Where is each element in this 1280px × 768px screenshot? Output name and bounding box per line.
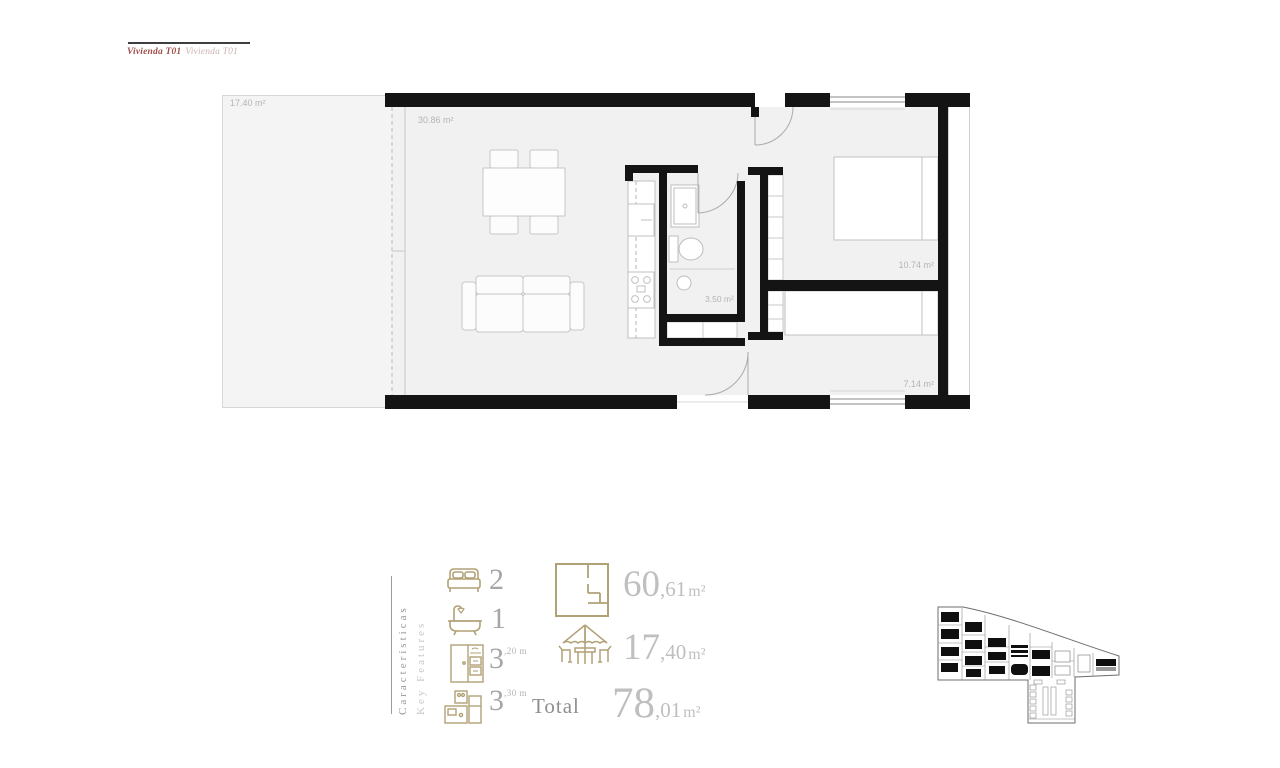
bedroom1-area-label: 10.74 m² <box>898 260 934 270</box>
bathroom-sink <box>677 276 691 290</box>
built-area-main: 60 <box>623 564 660 605</box>
kitchen <box>628 181 655 338</box>
floor-plan: 17.40 m² 30.86 m² <box>222 86 972 416</box>
terrace-area-unit: m² <box>688 646 705 663</box>
stove <box>628 272 654 308</box>
floorplan-icon <box>553 561 611 619</box>
features-divider-line <box>391 576 392 714</box>
facade-strip <box>949 103 970 399</box>
brochure-page: Vivienda T01Vivienda T01 17.40 m² 30.86 … <box>0 0 1280 768</box>
bedroom-count: 2 <box>489 565 504 595</box>
wardrobe-length-sup: ,20 m <box>504 646 527 656</box>
bedroom-count-value: 2 <box>489 563 504 596</box>
wardrobe-length: 3,20 m <box>489 644 527 674</box>
total-area-value: 78,01m² <box>612 682 701 725</box>
total-label: Total <box>532 694 580 719</box>
features-heading-es: Características <box>397 575 409 715</box>
site-plan-key-map <box>933 595 1128 740</box>
page-title: Vivienda T01Vivienda T01 <box>127 47 238 57</box>
parasol-icon <box>556 622 614 672</box>
shower <box>671 185 699 227</box>
bedroom2-area-label: 7.14 m² <box>903 379 934 389</box>
unit-title-en: Vivienda T01 <box>185 47 238 57</box>
kitchen-length: 3,30 m <box>489 686 527 716</box>
terrace-area-main: 17 <box>623 627 660 668</box>
header-rule <box>128 42 250 44</box>
wardrobe-length-value: 3 <box>489 642 504 675</box>
kitchen-length-value: 3 <box>489 684 504 717</box>
total-area-dec: ,01 <box>655 698 681 722</box>
kitchen-length-sup: ,30 m <box>504 688 527 698</box>
toilet <box>669 236 703 262</box>
bathroom-area-label: 3.50 m² <box>705 294 734 304</box>
unit-title-es: Vivienda T01 <box>127 47 181 57</box>
living-area-label: 30.86 m² <box>418 115 454 125</box>
built-area-unit: m² <box>688 583 705 600</box>
built-area-dec: ,61 <box>660 577 686 601</box>
wardrobe-icon <box>449 643 485 685</box>
kitchen-icon <box>443 688 485 726</box>
terrace-area-label: 17.40 m² <box>230 98 266 108</box>
built-area-value: 60,61m² <box>623 566 706 603</box>
unit-shadow <box>1096 667 1116 671</box>
total-area-main: 78 <box>612 680 655 727</box>
bathroom-count-value: 1 <box>491 602 506 635</box>
bathroom-count: 1 <box>491 604 506 634</box>
sofa <box>462 276 584 332</box>
total-area-unit: m² <box>683 704 700 721</box>
features-heading-en: Key Features <box>415 575 427 715</box>
terrace-area-dec: ,40 <box>660 640 686 664</box>
room-terrace: 17.40 m² <box>223 96 393 408</box>
bathtub-icon <box>445 602 485 638</box>
single-bed <box>785 291 938 335</box>
terrace-area-value: 17,40m² <box>623 629 706 666</box>
bed-icon <box>443 564 485 598</box>
